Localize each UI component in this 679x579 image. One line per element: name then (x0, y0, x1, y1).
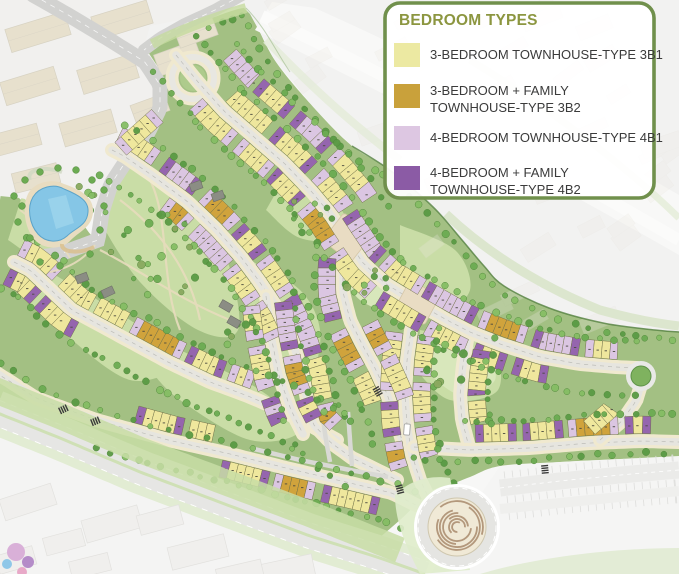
svg-text:4-BEDROOM + FAMILY: 4-BEDROOM + FAMILY (430, 165, 569, 180)
svg-text:TOWNHOUSE-TYPE 3B2: TOWNHOUSE-TYPE 3B2 (430, 100, 581, 115)
svg-text:BEDROOM TYPES: BEDROOM TYPES (399, 12, 538, 29)
svg-text:TOWNHOUSE-TYPE 4B2: TOWNHOUSE-TYPE 4B2 (430, 182, 581, 197)
svg-text:3-BEDROOM TOWNHOUSE-TYPE 3B1: 3-BEDROOM TOWNHOUSE-TYPE 3B1 (430, 47, 663, 62)
svg-text:3-BEDROOM + FAMILY: 3-BEDROOM + FAMILY (430, 83, 569, 98)
svg-text:4-BEDROOM TOWNHOUSE-TYPE 4B1: 4-BEDROOM TOWNHOUSE-TYPE 4B1 (430, 130, 663, 145)
